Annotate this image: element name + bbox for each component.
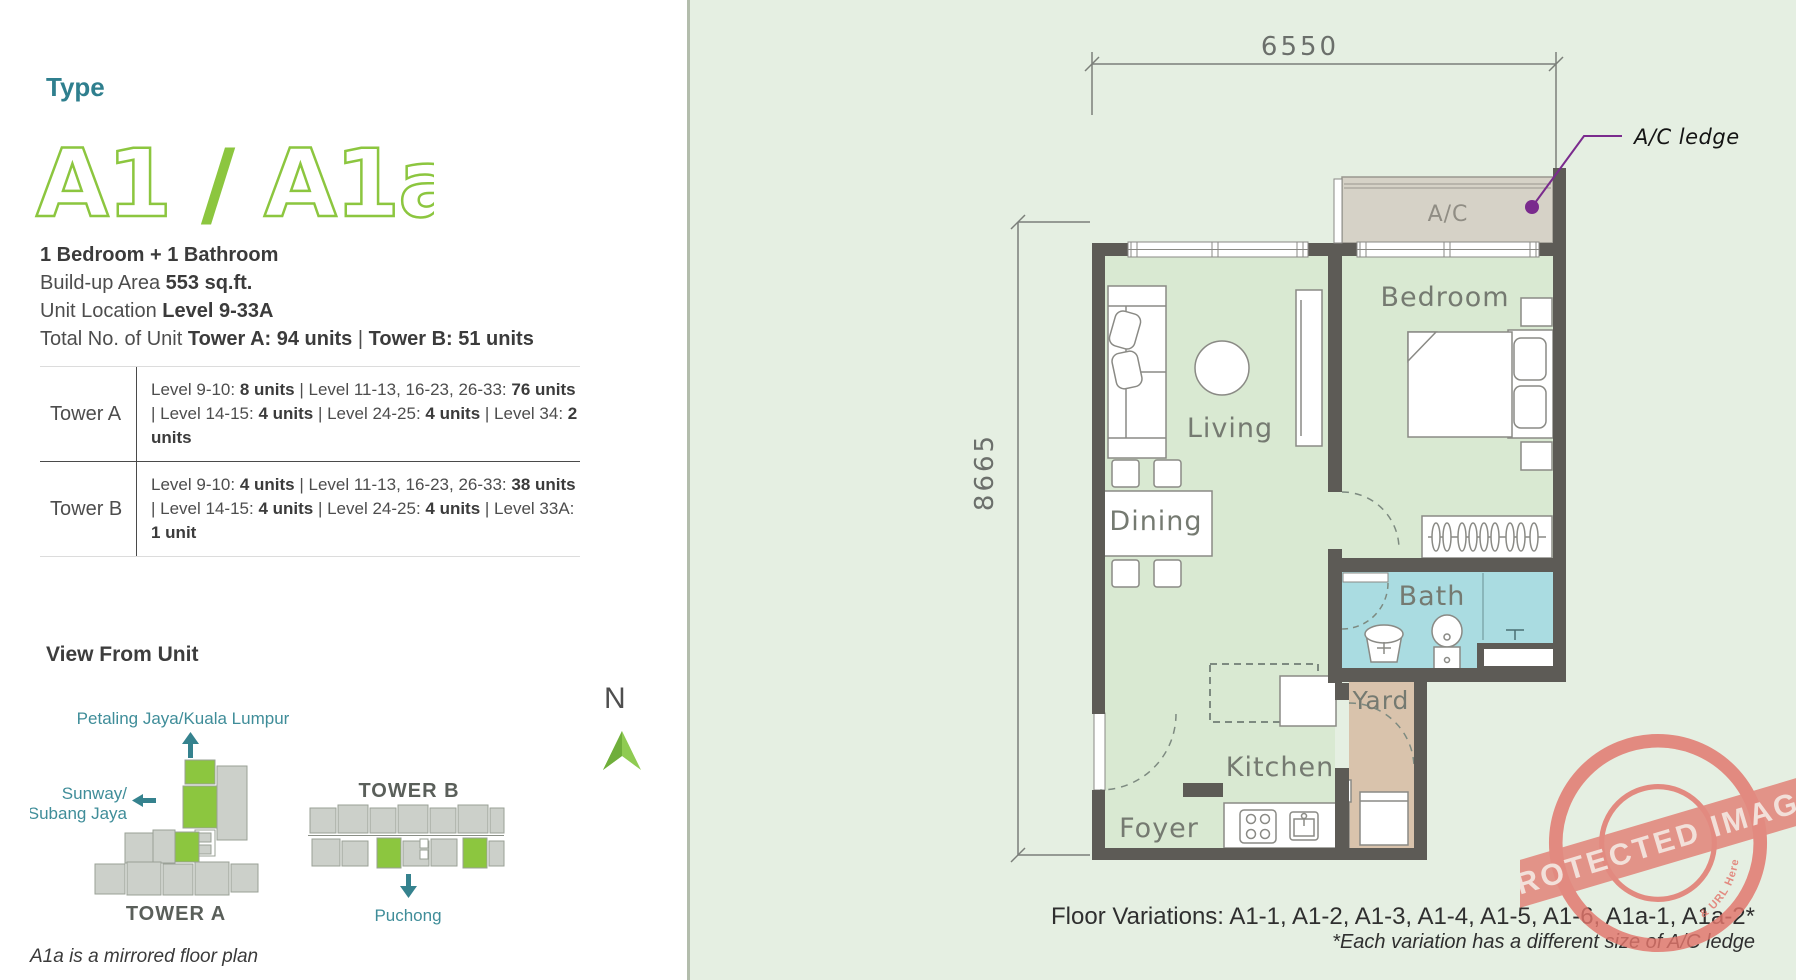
sink-icon [1290,812,1318,840]
unit-info-panel: Type A1 / A1a 1 Bedroom + 1 Bathroom Bui… [0,0,690,980]
tower-a-label: TOWER A [126,903,226,925]
table-row-tower-b: Tower B Level 9-10: 4 units | Level 11-1… [40,461,580,556]
direction-north-label: Petaling Jaya/Kuala Lumpur [77,709,290,728]
table-row-tower-a: Tower A Level 9-10: 8 units | Level 11-1… [40,367,580,461]
compass-letter: N [604,682,626,716]
west-arrow-icon [132,794,156,807]
unit-code-slash: / [201,134,236,239]
tower-b-row-detail: Level 9-10: 4 units | Level 11-13, 16-23… [136,462,580,556]
washing-machine [1360,792,1408,845]
bedroom-label: Bedroom [1380,282,1509,313]
floor-plan: 6550 8665 [690,0,1796,980]
spec-total-units: Total No. of Unit Tower A: 94 units | To… [40,325,534,353]
unit-specs: 1 Bedroom + 1 Bathroom Build-up Area 553… [40,241,534,353]
kitchen-counter [1224,803,1349,848]
north-arrow-icon [182,732,199,758]
spec-unit-location: Unit Location Level 9-33A [40,297,534,325]
stove-icon [1240,810,1276,843]
mirrored-plan-footnote: A1a is a mirrored floor plan [30,946,258,968]
floor-variations-list: Floor Variations: A1-1, A1-2, A1-3, A1-4… [1051,903,1755,930]
ac-room-label: A/C [1428,202,1469,227]
svg-text:A1 / A1a: A1 / A1a [36,134,434,239]
floor-variations: Floor Variations: A1-1, A1-2, A1-3, A1-4… [1051,903,1755,954]
tower-b-label: TOWER B [358,780,459,802]
ac-ledge-dot [1525,200,1539,214]
tv-console [1296,290,1322,446]
compass-arrow-icon [595,725,647,775]
coffee-table [1195,341,1249,395]
wash-basin [1365,625,1403,662]
tower-b-row-label: Tower B [40,496,136,522]
dimension-width-label: 6550 [1261,32,1339,62]
unit-code-heading: A1 / A1a [34,134,434,244]
unit-code-a1a: A1a [264,134,434,239]
sofa [1108,286,1166,458]
spec-bedroom-bathroom: 1 Bedroom + 1 Bathroom [40,241,534,269]
unit-allocation-table: Tower A Level 9-10: 8 units | Level 11-1… [40,366,580,557]
dining-label: Dining [1109,506,1202,537]
kitchen-label: Kitchen [1226,752,1334,783]
dimension-height-label: 8665 [970,433,1000,511]
brochure-page: Type A1 / A1a 1 Bedroom + 1 Bathroom Bui… [0,0,1796,980]
tower-a-row-detail: Level 9-10: 8 units | Level 11-13, 16-23… [136,367,580,461]
south-arrow-icon [400,874,417,898]
floor-variations-note: *Each variation has a different size of … [1051,930,1755,954]
wardrobe [1422,516,1552,558]
yard-label: Yard [1352,686,1410,715]
unit-code-a1: A1 [36,134,170,239]
direction-south-label: Puchong [374,906,441,925]
ac-ledge-label: A/C ledge [1632,125,1740,149]
tower-a-row-label: Tower A [40,401,136,427]
spec-buildup-area: Build-up Area 553 sq.ft. [40,269,534,297]
living-label: Living [1187,413,1273,444]
bath-label: Bath [1399,581,1466,612]
direction-west-label-2: Subang Jaya [30,804,128,823]
type-heading: Type [46,72,105,103]
tower-b-footprint [308,805,504,868]
view-from-unit-diagram: Petaling Jaya/Kuala Lumpur Sunway/ Suban… [30,590,650,935]
bath-door-leaf [1343,573,1388,582]
direction-west-label-1: Sunway/ [62,784,127,803]
foyer-label: Foyer [1119,813,1199,844]
tower-a-footprint [95,760,258,895]
